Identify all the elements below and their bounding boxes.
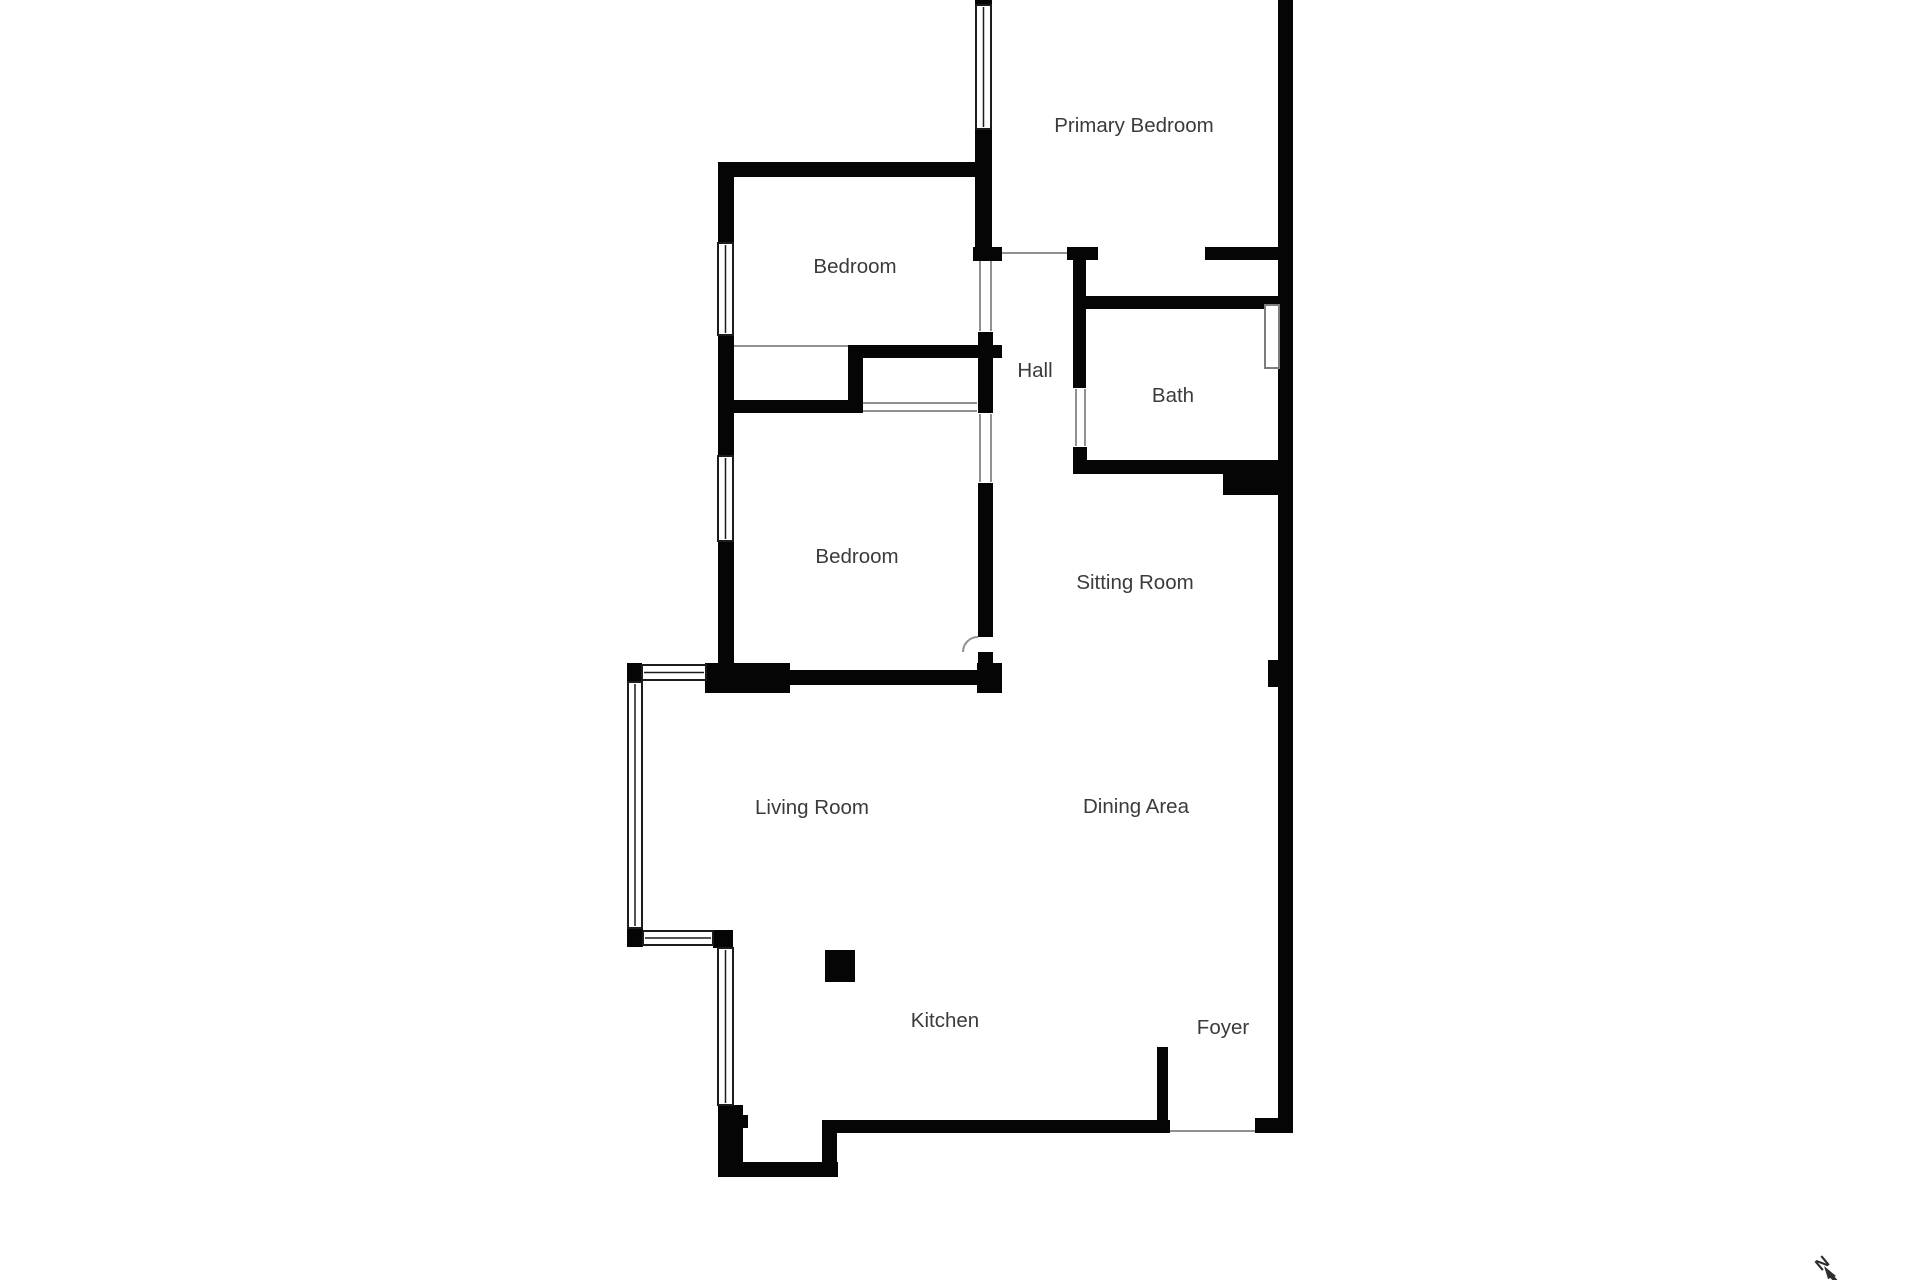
room-label-primary-bedroom: Primary Bedroom	[1054, 114, 1214, 137]
wall-primary-bottom-left	[973, 247, 1002, 261]
kitchen-fixture-block	[825, 950, 855, 982]
wall-bedroom1-left-upper	[718, 162, 734, 243]
wall-main-bottom	[822, 1120, 1170, 1133]
room-label-foyer: Foyer	[1197, 1016, 1250, 1039]
room-label-bath: Bath	[1152, 384, 1194, 407]
wall-bath-left-upper	[1073, 296, 1086, 388]
wall-foyer-stub	[1157, 1047, 1168, 1132]
room-label-kitchen: Kitchen	[911, 1009, 979, 1032]
wall-kitchen-left-nub	[733, 1115, 748, 1128]
wall-bedroom1-top	[720, 162, 990, 177]
window-bedroom1-left	[718, 243, 733, 335]
floorplan-page: Primary Bedroom Bedroom Hall Bath Bedroo…	[0, 0, 1920, 1280]
window-bedroom2-left	[718, 456, 733, 541]
wall-bath-top	[1082, 296, 1293, 309]
window-kitchen-left	[718, 948, 733, 1105]
room-label-bedroom-top: Bedroom	[813, 255, 896, 278]
wall-bedroom2-bottom-right-block	[977, 663, 1002, 693]
window-bay-left	[628, 682, 642, 928]
window-bay-bottom	[643, 931, 713, 945]
wall-bedroom2-left-lower	[718, 541, 734, 663]
wall-bay-bottom-corner	[627, 928, 643, 947]
wall-kitchen-bottom	[718, 1162, 838, 1177]
room-label-sitting-room: Sitting Room	[1076, 571, 1193, 594]
room-label-living-room: Living Room	[755, 796, 869, 819]
window-bay-top	[642, 665, 706, 680]
wall-right	[1278, 0, 1293, 1133]
wall-primary-bottom-right	[1205, 247, 1293, 260]
wall-bay-top-corner	[627, 663, 642, 682]
wall-primary-left-upper	[975, 128, 992, 260]
wall-bedroom2-right-upper	[978, 483, 993, 637]
wall-bedroom2-bottom-left-block	[705, 663, 790, 693]
wall-closet-bottom	[718, 400, 860, 413]
wall-sitting-nub	[1268, 660, 1280, 687]
floorplan-svg: Primary Bedroom Bedroom Hall Bath Bedroo…	[0, 0, 1920, 1280]
window-top	[976, 5, 991, 129]
room-label-bedroom-second: Bedroom	[815, 545, 898, 568]
wall-bay-inner-corner	[713, 930, 733, 948]
bath-fixture	[1265, 305, 1279, 368]
wall-hall-top	[848, 345, 1002, 358]
room-label-hall: Hall	[1017, 359, 1052, 382]
door-arc-bedroom2	[963, 637, 978, 652]
compass: N	[1812, 1252, 1846, 1280]
wall-bedroom2-bottom	[790, 670, 977, 685]
wall-bath-bottom	[1073, 460, 1280, 474]
wall-primary-left-mid	[978, 332, 993, 413]
wall-kitchen-step	[822, 1128, 837, 1177]
wall-bath-bottom-block	[1223, 474, 1293, 495]
room-label-dining-area: Dining Area	[1083, 795, 1190, 818]
wall-bedroom2-left-upper	[718, 413, 734, 457]
